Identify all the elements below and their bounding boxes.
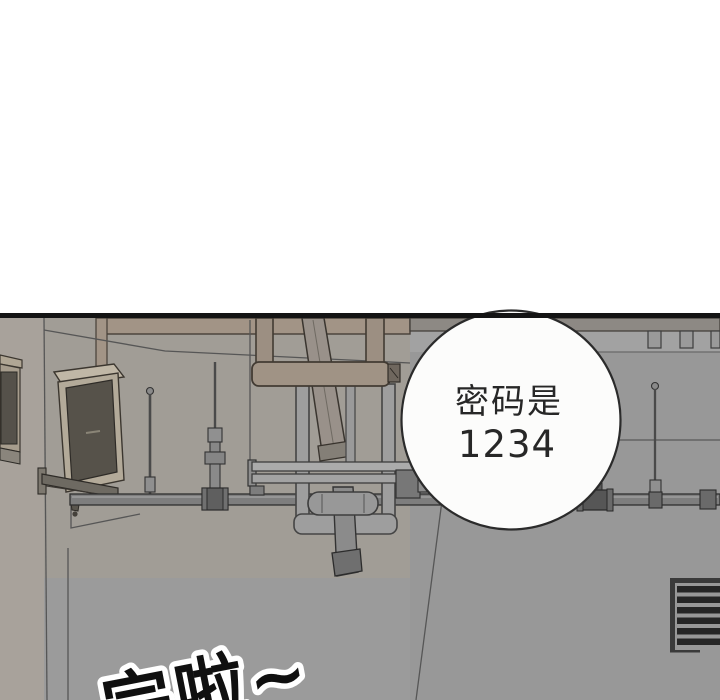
vent-slat — [677, 597, 720, 604]
pipe-saddle — [649, 492, 662, 508]
vent-frame-top — [670, 578, 720, 583]
speaker-front-grille — [66, 380, 117, 482]
tee-flange — [223, 488, 228, 510]
comic-panel-illustration: 密码是 1234 完啦~ — [0, 0, 720, 700]
frame-post-right — [382, 384, 395, 524]
valve-sleeve — [205, 452, 225, 464]
vent-frame-bottom — [670, 650, 700, 653]
panel-top-border — [0, 313, 720, 318]
bracket-bolt-tip — [72, 511, 77, 516]
pipe-hanger-bracket — [648, 331, 661, 348]
valve-neck — [210, 442, 220, 452]
speech-bubble-text-line1: 密码是 — [455, 382, 563, 422]
tee-flange — [202, 488, 207, 510]
pipe-flange-collar — [308, 492, 378, 515]
frame-middle-rod — [346, 384, 355, 468]
speaker-front-grille — [1, 372, 17, 444]
beam-hanger-rod — [96, 318, 107, 372]
speech-bubble-password-digits: 1234 — [458, 423, 556, 466]
ceiling-beam — [100, 318, 410, 334]
vent-slat — [677, 586, 720, 593]
vent-slat — [677, 628, 720, 635]
drop-pipe-end-cap — [332, 549, 362, 576]
pipe-hanger-bracket — [711, 331, 720, 348]
pipe-coupling — [700, 490, 716, 509]
sprinkler-head — [652, 383, 659, 390]
tee-flange — [607, 489, 613, 511]
pipe-hanger-bracket — [680, 331, 693, 348]
tan-frame-crossbar — [252, 362, 390, 386]
frame-post-left — [296, 384, 309, 524]
vent-slat — [677, 607, 720, 614]
wall-speaker-left-partial — [0, 355, 22, 464]
comic-page: 密码是 1234 完啦~ — [0, 0, 720, 700]
pipe-coupling — [145, 477, 155, 492]
valve-body — [208, 428, 222, 442]
vent-slat — [677, 639, 720, 646]
rail-hook — [250, 486, 264, 495]
speech-bubble: 密码是 1234 — [402, 311, 621, 530]
sprinkler-head — [147, 388, 154, 395]
vent-frame-left — [670, 578, 675, 652]
vent-slat — [677, 618, 720, 625]
